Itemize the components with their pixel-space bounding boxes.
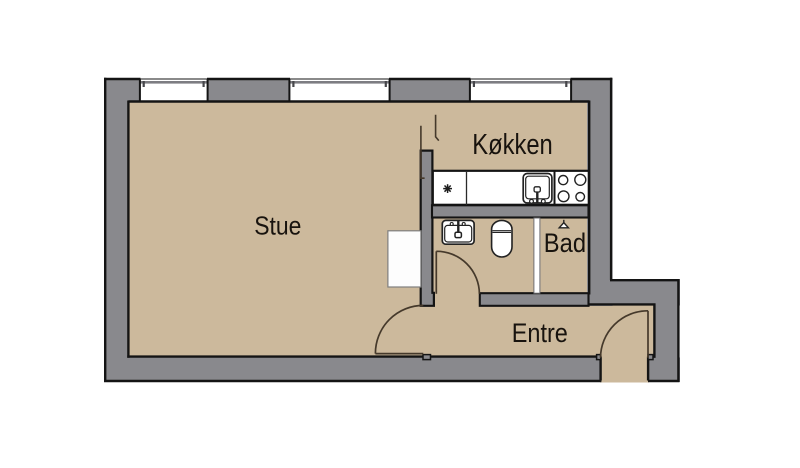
svg-text:Køkken: Køkken bbox=[472, 128, 553, 161]
svg-text:Bad: Bad bbox=[544, 229, 586, 259]
svg-text:Entre: Entre bbox=[512, 318, 568, 348]
svg-text:Stue: Stue bbox=[254, 212, 301, 240]
